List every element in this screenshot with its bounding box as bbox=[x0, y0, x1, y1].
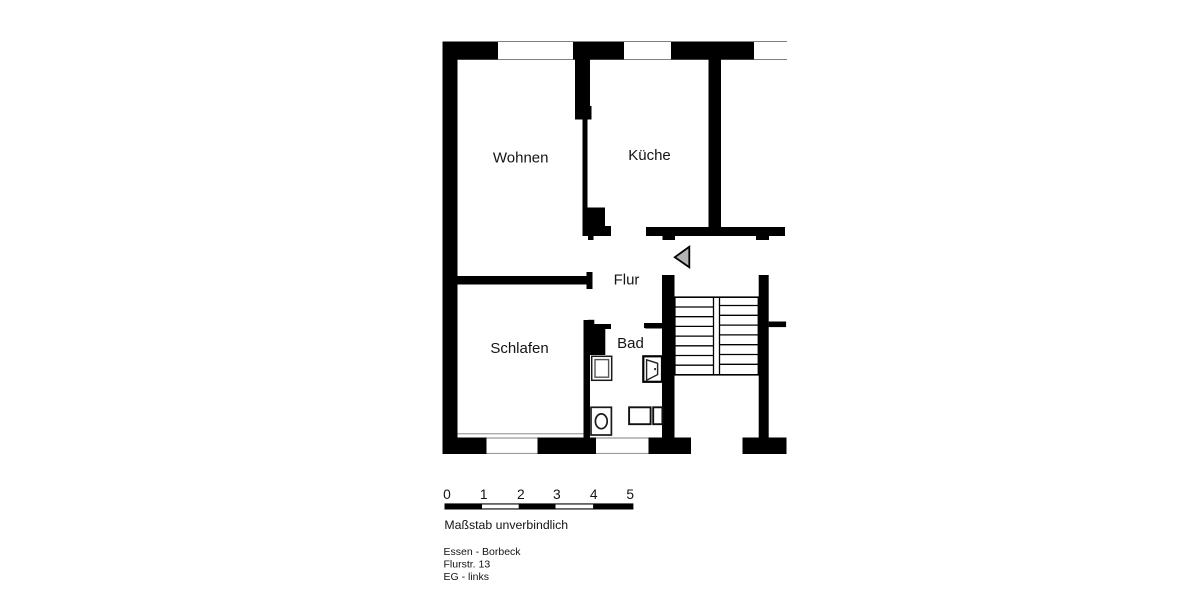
svg-text:1: 1 bbox=[480, 487, 488, 502]
svg-text:Flurstr. 13: Flurstr. 13 bbox=[444, 558, 491, 570]
svg-text:5: 5 bbox=[626, 487, 634, 502]
svg-text:Essen - Borbeck: Essen - Borbeck bbox=[444, 546, 522, 558]
svg-text:EG - links: EG - links bbox=[444, 571, 490, 583]
svg-text:Flur: Flur bbox=[614, 272, 640, 289]
svg-text:4: 4 bbox=[590, 487, 598, 502]
svg-text:Wohnen: Wohnen bbox=[493, 150, 549, 167]
svg-text:2: 2 bbox=[517, 487, 525, 502]
svg-text:0: 0 bbox=[443, 487, 451, 502]
svg-text:Schlafen: Schlafen bbox=[490, 340, 548, 357]
svg-text:Maßstab unverbindlich: Maßstab unverbindlich bbox=[444, 518, 568, 532]
svg-text:Küche: Küche bbox=[628, 147, 671, 164]
svg-text:Bad: Bad bbox=[617, 335, 644, 352]
svg-text:3: 3 bbox=[553, 487, 561, 502]
